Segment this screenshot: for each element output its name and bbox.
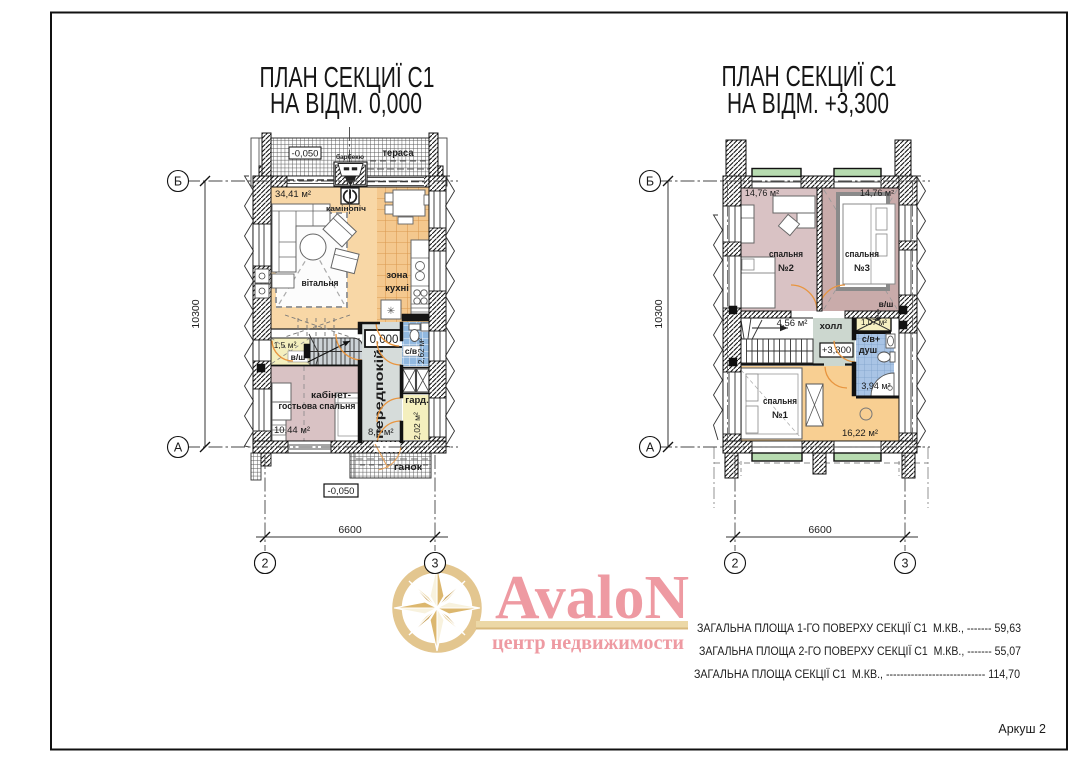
svg-text:10300: 10300 (190, 299, 202, 328)
svg-text:спальня: спальня (845, 249, 879, 260)
svg-text:10,44 м²: 10,44 м² (274, 425, 310, 436)
svg-text:барбекю: барбекю (336, 153, 364, 161)
svg-text:А: А (174, 441, 183, 455)
svg-text:4,56 м²: 4,56 м² (777, 318, 808, 329)
svg-text:камінопіч: камінопіч (326, 205, 366, 213)
svg-text:центр недвижимости: центр недвижимости (492, 632, 684, 654)
svg-text:-0,050: -0,050 (292, 149, 319, 160)
svg-text:ЗАГАЛЬНА ПЛОЩА 1-ГО ПОВЕРХУ СЕ: ЗАГАЛЬНА ПЛОЩА 1-ГО ПОВЕРХУ СЕКЦІЇ С1 М.… (697, 621, 1021, 635)
svg-text:10300: 10300 (653, 299, 665, 328)
svg-text:ЗАГАЛЬНА ПЛОЩА 2-ГО ПОВЕРХУ СЕ: ЗАГАЛЬНА ПЛОЩА 2-ГО ПОВЕРХУ СЕКЦІЇ С1 М.… (699, 644, 1021, 658)
svg-text:34,41 м²: 34,41 м² (275, 189, 311, 200)
svg-text:3: 3 (432, 557, 439, 571)
svg-text:1,5 м²: 1,5 м² (274, 340, 297, 350)
svg-text:3,94 м²: 3,94 м² (861, 381, 890, 391)
svg-text:кабінет-: кабінет- (311, 390, 351, 401)
svg-text:вітальня: вітальня (302, 278, 339, 289)
svg-text:ганок: ганок (394, 462, 422, 473)
svg-text:в/ш: в/ш (879, 299, 894, 309)
svg-text:3: 3 (902, 557, 909, 571)
svg-text:гард.: гард. (405, 395, 428, 406)
svg-text:16,22 м²: 16,22 м² (842, 428, 878, 439)
svg-text:Б: Б (174, 175, 182, 189)
svg-text:2,02 м²: 2,02 м² (412, 412, 422, 440)
svg-text:с/в: с/в (405, 346, 417, 356)
svg-text:№2: №2 (778, 263, 794, 274)
svg-text:холл: холл (820, 321, 843, 332)
svg-text:-0,050: -0,050 (328, 486, 355, 497)
svg-text:14,76 м²: 14,76 м² (745, 188, 779, 198)
svg-text:№1: №1 (772, 410, 789, 421)
svg-text:НА ВІДМ. 0,000: НА ВІДМ. 0,000 (270, 88, 422, 120)
svg-text:кухні: кухні (385, 283, 409, 294)
svg-text:✳: ✳ (387, 306, 395, 317)
svg-text:с/в+: с/в+ (862, 334, 880, 344)
svg-text:спальня: спальня (769, 249, 803, 260)
svg-text:НА ВІДМ. +3,300: НА ВІДМ. +3,300 (727, 88, 889, 120)
svg-text:6600: 6600 (338, 524, 362, 536)
svg-text:А: А (646, 441, 655, 455)
svg-text:14,76 м²: 14,76 м² (860, 188, 894, 198)
svg-text:тераса: тераса (383, 148, 414, 159)
svg-text:Аркуш 2: Аркуш 2 (998, 722, 1046, 736)
svg-text:гостьова спальня: гостьова спальня (279, 401, 356, 411)
svg-text:6600: 6600 (808, 524, 832, 536)
svg-text:2: 2 (732, 557, 739, 571)
svg-text:зона: зона (386, 270, 408, 281)
svg-text:№3: №3 (854, 263, 870, 274)
svg-text:Б: Б (646, 175, 654, 189)
svg-text:1,07 м²: 1,07 м² (861, 318, 887, 327)
svg-text:2,62 м²: 2,62 м² (417, 338, 426, 364)
svg-text:AvaloN: AvaloN (495, 564, 689, 632)
svg-text:2: 2 (262, 557, 269, 571)
svg-text:спальня: спальня (763, 396, 797, 407)
svg-text:передпокій: передпокій (374, 349, 386, 439)
svg-text:душ: душ (859, 345, 877, 355)
svg-text:ЗАГАЛЬНА ПЛОЩА СЕКЦІЇ С1 М.КВ: ЗАГАЛЬНА ПЛОЩА СЕКЦІЇ С1 М.КВ., --------… (694, 667, 1020, 681)
